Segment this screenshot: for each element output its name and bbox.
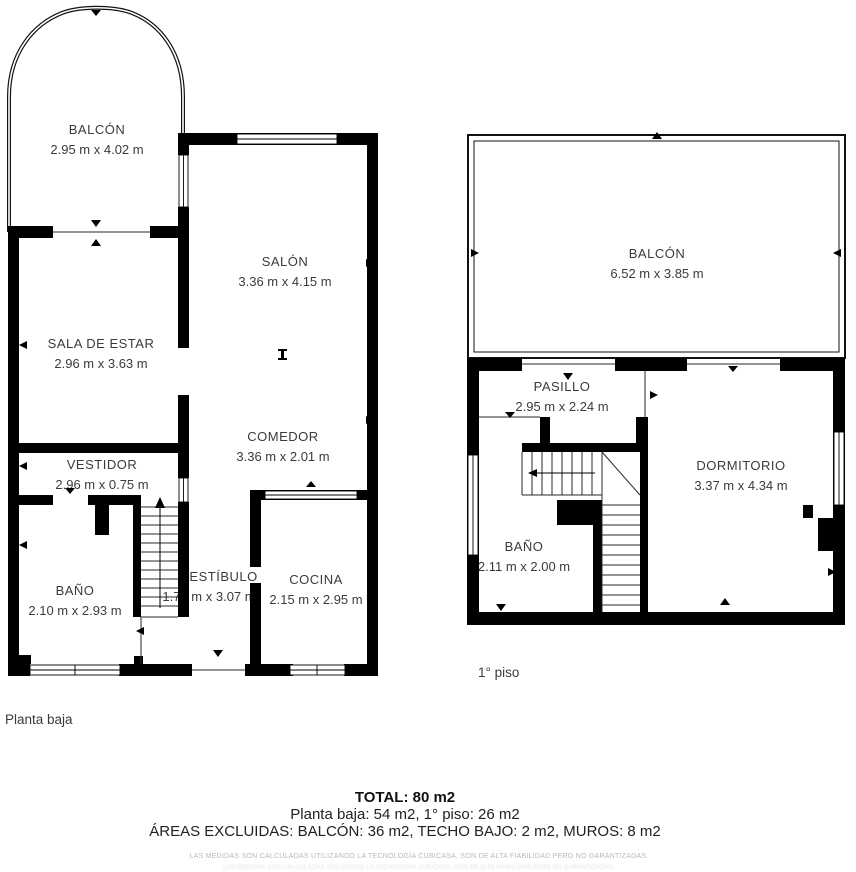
- floor-areas: Planta baja: 54 m2, 1° piso: 26 m2: [0, 806, 810, 823]
- room-label-sala-de-estar: SALA DE ESTAR 2.96 m x 3.63 m: [48, 337, 155, 371]
- excluded-areas: ÁREAS EXCLUIDAS: BALCÓN: 36 m2, TECHO BA…: [0, 823, 810, 840]
- balcony-arch-wall: [9, 8, 183, 232]
- room-label-balcon-first: BALCÓN 6.52 m x 3.85 m: [610, 247, 703, 281]
- room-label-vestibulo: VESTÍBULO 1.76 m x 3.07 m: [180, 570, 257, 604]
- room-label-comedor: COMEDOR 3.36 m x 2.01 m: [236, 430, 329, 464]
- room-label-dormitorio: DORMITORIO 3.37 m x 4.34 m: [694, 459, 787, 493]
- room-label-pasillo: PASILLO 2.95 m x 2.24 m: [515, 380, 608, 414]
- ground-floor-caption: Planta baja: [5, 712, 73, 727]
- floorplan-page: BALCÓN 2.95 m x 4.02 m SALÓN 3.36 m x 4.…: [0, 0, 856, 872]
- ground-markers: [19, 10, 374, 657]
- area-summary: TOTAL: 80 m2 Planta baja: 54 m2, 1° piso…: [0, 789, 810, 840]
- room-label-bano-ground: BAÑO 2.10 m x 2.93 m: [28, 584, 121, 618]
- room-label-salon: SALÓN 3.36 m x 4.15 m: [238, 255, 331, 289]
- first-floor-caption: 1° piso: [478, 665, 519, 680]
- room-label-bano-first: BAÑO 2.11 m x 2.00 m: [478, 540, 570, 574]
- room-label-cocina: COCINA 2.15 m x 2.95 m: [269, 573, 362, 607]
- measurement-disclaimer: LAS MEDIDAS SON CALCULADAS UTILIZANDO LA…: [0, 853, 838, 860]
- measurement-disclaimer-faint: LAS MEDIDAS SON CALCULADAS UTILIZANDO LA…: [0, 865, 838, 871]
- stairs-first: [522, 452, 640, 612]
- stairs-up-arrow-ground: [155, 497, 165, 508]
- room-label-vestidor: VESTIDOR 2.96 m x 0.75 m: [55, 458, 148, 492]
- floorplan-drawing: [0, 0, 856, 772]
- total-area: TOTAL: 80 m2: [0, 789, 810, 806]
- room-label-balcon-ground: BALCÓN 2.95 m x 4.02 m: [50, 123, 143, 157]
- stairs-direction-arrow-first: [528, 469, 537, 477]
- first-windows: [468, 432, 844, 555]
